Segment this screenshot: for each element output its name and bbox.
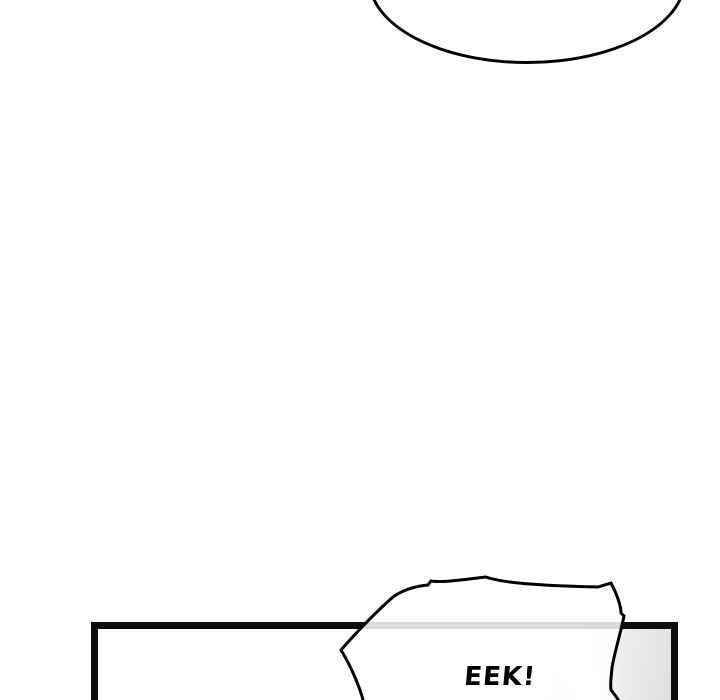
comic-page: EEK! [0,0,720,700]
shout-bubble [0,0,720,700]
shout-text: EEK! [454,662,547,692]
